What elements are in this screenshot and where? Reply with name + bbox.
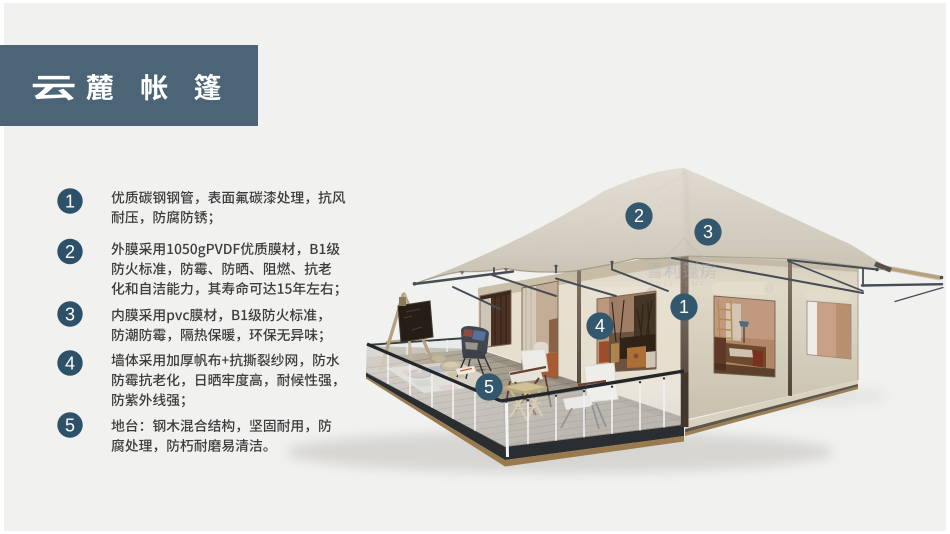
svg-text:3: 3 [65, 304, 75, 324]
svg-text:2: 2 [65, 242, 75, 262]
svg-text:5: 5 [65, 415, 75, 435]
svg-text:4: 4 [65, 353, 75, 373]
svg-text:5: 5 [484, 377, 494, 397]
svg-text:1: 1 [65, 191, 75, 211]
svg-text:2: 2 [634, 206, 644, 226]
svg-text:1: 1 [679, 297, 689, 317]
svg-text:YULI TENT: YULI TENT [649, 281, 706, 288]
svg-text:3: 3 [703, 222, 713, 242]
svg-text:4: 4 [595, 316, 605, 336]
